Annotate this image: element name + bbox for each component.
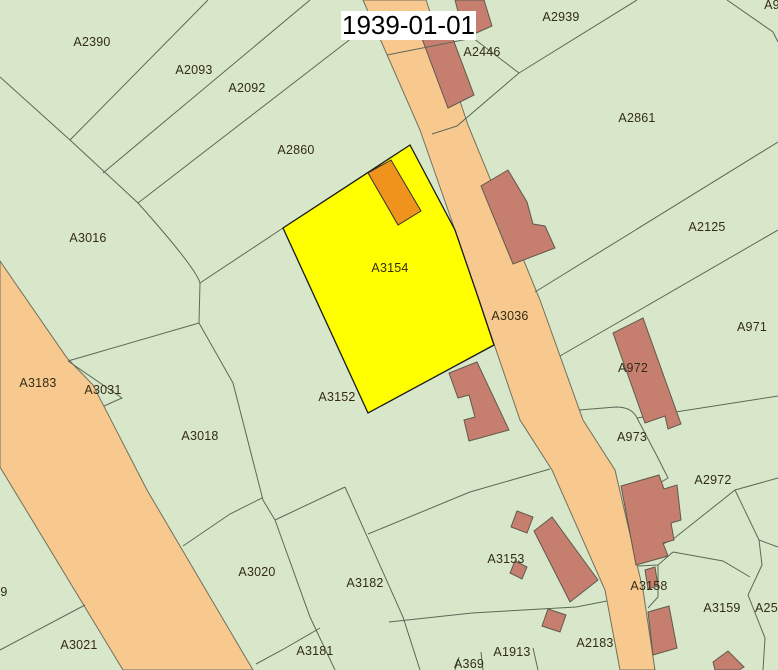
map-date-title: 1939-01-01 (341, 11, 476, 40)
map-layers (0, 0, 778, 670)
cadastral-map-canvas[interactable]: A2390A2093A2092A2860A2939A2446A2861A2125… (0, 0, 778, 670)
